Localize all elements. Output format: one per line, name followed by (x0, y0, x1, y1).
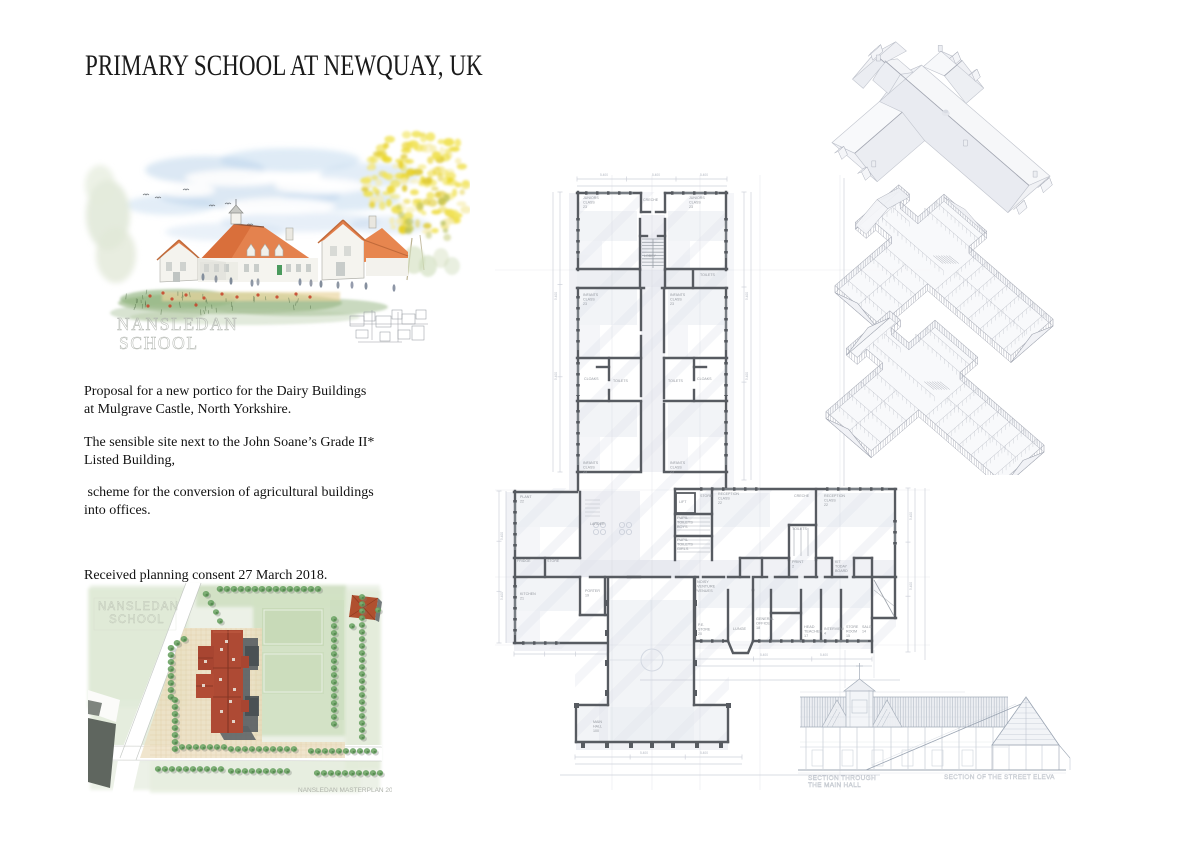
svg-text:PUPIL: PUPIL (677, 538, 688, 542)
svg-text:BOYS: BOYS (677, 525, 688, 529)
svg-text:5.400: 5.400 (500, 532, 504, 540)
svg-text:CLASS: CLASS (670, 298, 682, 302)
svg-text:INFANTS: INFANTS (670, 461, 686, 465)
svg-text:CLASS: CLASS (583, 201, 595, 205)
svg-text:22: 22 (824, 503, 828, 507)
svg-text:5.400: 5.400 (745, 372, 749, 380)
svg-text:100: 100 (593, 729, 599, 733)
svg-text:LUNGE: LUNGE (733, 627, 747, 631)
svg-text:23: 23 (689, 205, 693, 209)
svg-text:5.400: 5.400 (554, 292, 558, 300)
svg-text:VENUES: VENUES (697, 589, 713, 593)
svg-text:TEACHER: TEACHER (804, 630, 822, 634)
svg-text:P.E.: P.E. (698, 623, 704, 627)
svg-text:PLANT: PLANT (520, 495, 532, 499)
svg-text:TOILETS: TOILETS (613, 379, 629, 383)
svg-text:SCHOOL: SCHOOL (119, 333, 199, 353)
svg-text:5.400: 5.400 (909, 582, 913, 590)
svg-text:CRECHE: CRECHE (643, 198, 659, 202)
svg-text:5.400: 5.400 (700, 751, 708, 755)
svg-text:BOARD: BOARD (835, 569, 848, 573)
svg-text:CLASS: CLASS (670, 466, 682, 470)
svg-text:PRINT: PRINT (792, 560, 804, 564)
svg-text:OFFICE: OFFICE (756, 622, 770, 626)
svg-text:INTERVIEW: INTERVIEW (824, 627, 845, 631)
svg-text:5.400: 5.400 (652, 173, 660, 177)
svg-text:TOILETS: TOILETS (700, 273, 716, 277)
svg-text:PORTER: PORTER (585, 589, 600, 593)
svg-text:KIT: KIT (835, 560, 841, 564)
svg-text:VENTURE: VENTURE (697, 585, 716, 589)
svg-text:5.400: 5.400 (600, 173, 608, 177)
svg-text:TOILETS: TOILETS (792, 527, 808, 531)
svg-text:NOISY: NOISY (697, 580, 709, 584)
svg-text:INFANTS: INFANTS (583, 461, 599, 465)
svg-text:CLOAKS: CLOAKS (697, 377, 712, 381)
svg-text:TOILETS: TOILETS (677, 521, 693, 525)
svg-text:5.400: 5.400 (640, 751, 648, 755)
svg-text:22: 22 (718, 501, 722, 505)
svg-text:INFANTS: INFANTS (670, 293, 686, 297)
svg-text:JUNIORS: JUNIORS (583, 196, 599, 200)
svg-text:SECTION THROUGH: SECTION THROUGH (808, 775, 876, 782)
svg-text:STORE: STORE (547, 559, 560, 563)
svg-text:20: 20 (698, 632, 702, 636)
svg-text:CLASS: CLASS (583, 466, 595, 470)
svg-text:TODAY: TODAY (835, 565, 848, 569)
svg-text:SCHOOL: SCHOOL (109, 614, 165, 626)
svg-text:CLOAKS: CLOAKS (584, 377, 599, 381)
svg-text:4: 4 (824, 632, 826, 636)
svg-text:NANSLEDAN: NANSLEDAN (117, 314, 238, 334)
svg-text:STORE: STORE (700, 494, 713, 498)
svg-text:5.400: 5.400 (909, 512, 913, 520)
svg-text:22: 22 (520, 500, 524, 504)
svg-text:CLASS: CLASS (583, 298, 595, 302)
svg-text:5.400: 5.400 (745, 292, 749, 300)
svg-text:NANSLEDAN: NANSLEDAN (98, 601, 179, 613)
svg-text:NANSLEDAN MASTERPLAN 2018: NANSLEDAN MASTERPLAN 2018 (298, 787, 392, 794)
svg-text:15: 15 (846, 634, 850, 638)
svg-text:23: 23 (670, 302, 674, 306)
svg-text:LOBBY: LOBBY (644, 254, 657, 258)
svg-text:LIFT: LIFT (679, 500, 687, 504)
svg-text:MAIN: MAIN (593, 720, 602, 724)
svg-text:19: 19 (585, 594, 589, 598)
svg-text:CLASS: CLASS (689, 201, 701, 205)
svg-text:5.400: 5.400 (500, 592, 504, 600)
svg-text:STORE: STORE (846, 625, 859, 629)
svg-text:CRECHE: CRECHE (794, 494, 810, 498)
svg-text:RECEPTION: RECEPTION (824, 494, 845, 498)
svg-text:18: 18 (756, 626, 760, 630)
svg-text:KITCHEN: KITCHEN (520, 592, 536, 596)
svg-text:JUNIORS: JUNIORS (689, 196, 705, 200)
svg-text:FRIDGE: FRIDGE (517, 559, 531, 563)
svg-text:2: 2 (792, 565, 794, 569)
svg-text:21: 21 (520, 597, 524, 601)
svg-text:17: 17 (804, 634, 808, 638)
svg-text:GIRLS: GIRLS (677, 547, 689, 551)
svg-text:HEAD: HEAD (804, 625, 815, 629)
svg-text:SECTION OF THE STREET ELEVA: SECTION OF THE STREET ELEVA (944, 774, 1055, 781)
svg-text:TOILETS: TOILETS (668, 379, 684, 383)
svg-text:5.400: 5.400 (760, 653, 768, 657)
svg-text:PUPIL: PUPIL (677, 516, 688, 520)
svg-text:CLASS: CLASS (718, 497, 730, 501)
svg-text:14: 14 (862, 630, 866, 634)
svg-text:ROOM: ROOM (846, 630, 857, 634)
svg-text:STORE: STORE (698, 628, 711, 632)
svg-text:CLASS: CLASS (824, 499, 836, 503)
svg-text:5.400: 5.400 (554, 372, 558, 380)
svg-text:LARDER: LARDER (590, 522, 605, 526)
svg-text:INFANTS: INFANTS (583, 293, 599, 297)
svg-text:23: 23 (583, 302, 587, 306)
svg-text:RECEPTION: RECEPTION (718, 492, 739, 496)
svg-text:5.400: 5.400 (700, 173, 708, 177)
svg-text:23: 23 (583, 470, 587, 474)
svg-text:SALG: SALG (862, 625, 872, 629)
svg-text:THE MAIN HALL: THE MAIN HALL (808, 782, 861, 789)
svg-text:HALL: HALL (593, 725, 602, 729)
svg-text:TOILETS: TOILETS (677, 543, 693, 547)
svg-text:23: 23 (670, 470, 674, 474)
svg-text:GENERAL: GENERAL (756, 617, 774, 621)
svg-text:23: 23 (583, 205, 587, 209)
